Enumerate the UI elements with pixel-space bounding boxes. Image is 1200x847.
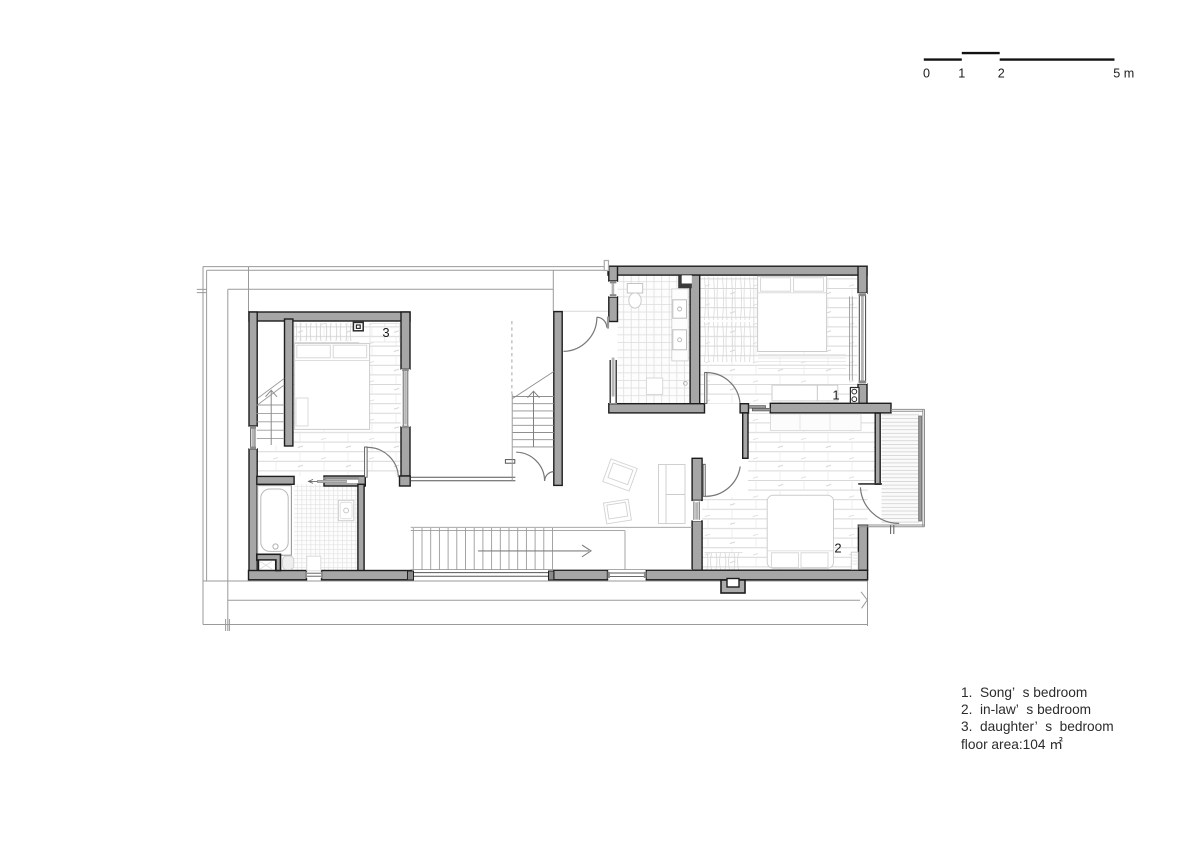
svg-text:2: 2 xyxy=(998,67,1005,81)
svg-text:3: 3 xyxy=(382,325,389,340)
svg-text:1: 1 xyxy=(832,388,839,403)
svg-text:1: 1 xyxy=(958,67,965,81)
svg-text:5 m: 5 m xyxy=(1113,67,1134,81)
svg-text:2: 2 xyxy=(834,541,841,556)
svg-text:0: 0 xyxy=(923,67,930,81)
